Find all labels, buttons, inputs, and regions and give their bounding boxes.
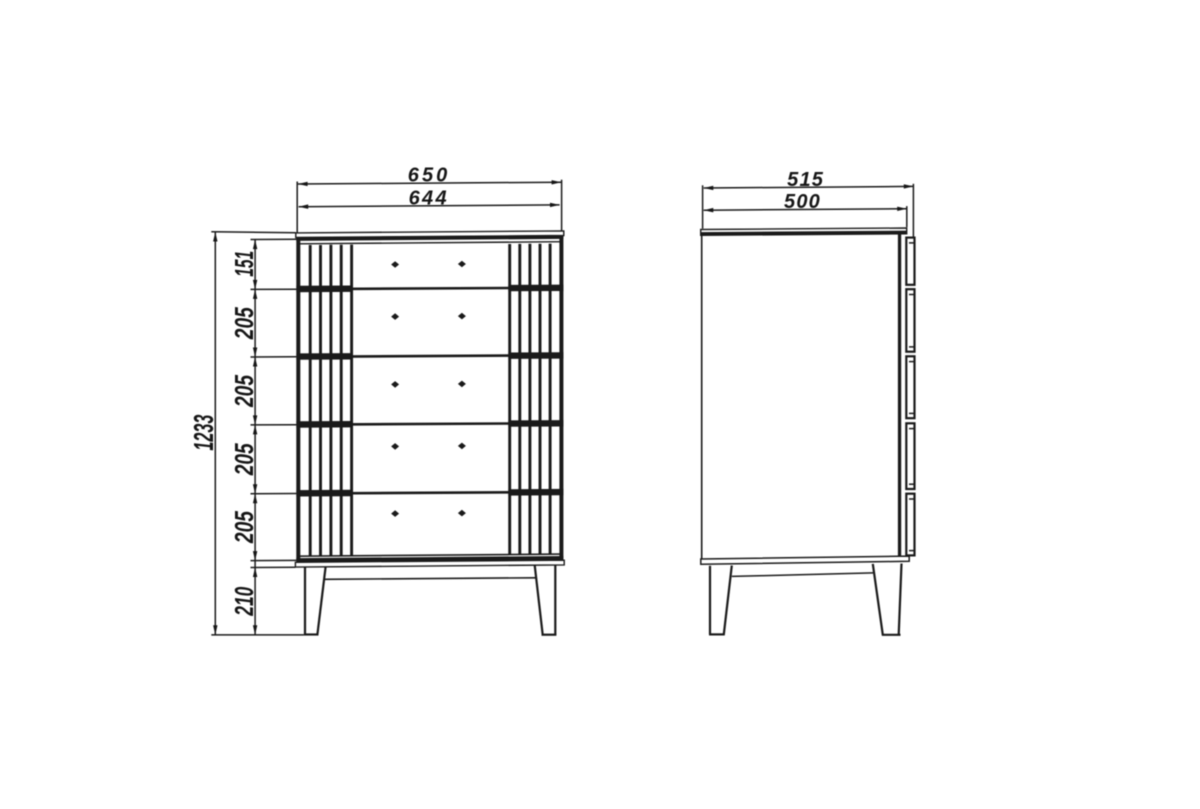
svg-text:205: 205 bbox=[229, 511, 259, 544]
svg-text:515: 515 bbox=[787, 169, 824, 191]
svg-text:1233: 1233 bbox=[188, 414, 219, 450]
svg-text:151: 151 bbox=[229, 251, 259, 277]
svg-text:500: 500 bbox=[784, 191, 820, 213]
svg-text:205: 205 bbox=[229, 307, 259, 340]
svg-text:205: 205 bbox=[229, 443, 259, 476]
svg-text:210: 210 bbox=[229, 586, 259, 616]
svg-text:650: 650 bbox=[408, 165, 448, 187]
svg-text:205: 205 bbox=[229, 375, 259, 408]
svg-text:644: 644 bbox=[409, 187, 447, 209]
